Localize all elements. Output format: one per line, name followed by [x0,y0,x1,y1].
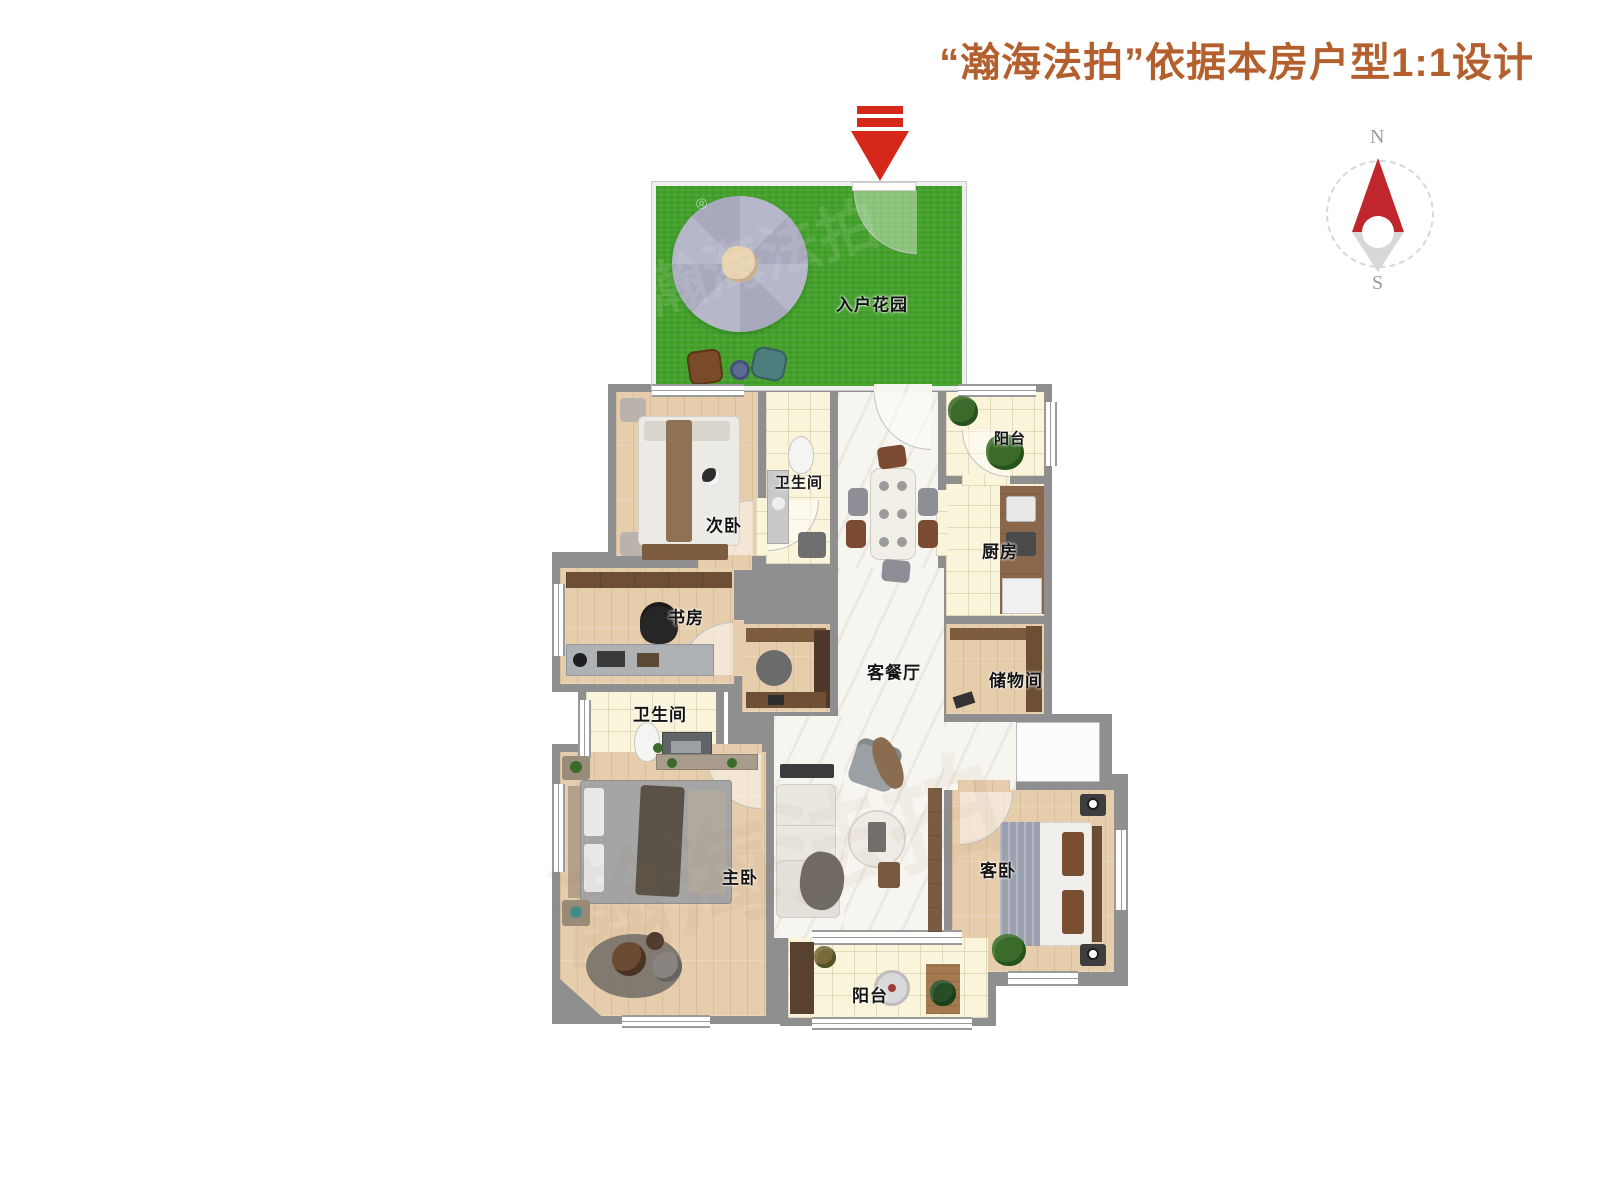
umbrella-center [722,246,758,282]
plant [814,946,836,968]
window-balcony-bottom [812,1017,972,1030]
balcony-cabinet [790,942,814,1014]
bed-guest [1000,822,1092,946]
window-guest-right [1114,830,1128,910]
garden-gate [852,182,916,191]
label-kitchen: 厨房 [982,538,1018,563]
window-balcony-top [958,384,1036,397]
dresser-bedroom-2 [642,544,728,560]
side-table [878,862,900,888]
label-master-bedroom: 主卧 [722,864,758,889]
window-study-left [552,584,565,656]
nightstand [1080,794,1106,816]
label-guest-bedroom: 客卧 [980,857,1016,882]
closet-box [1016,722,1100,782]
dining-chair [918,520,938,548]
garden-chair-brown [686,348,724,386]
dining-chair [848,488,868,516]
fridge [1002,578,1042,614]
dining-chair [881,559,911,583]
page-title: “瀚海法拍”依据本房户型1:1设计 [939,30,1534,88]
label-balcony-top: 阳台 [994,428,1026,449]
wardrobe-study [566,572,732,588]
floor-vase [646,932,664,950]
toilet [788,436,814,474]
study-door-gap [732,620,744,676]
floor-vase [652,952,682,982]
coffee-table [848,810,906,868]
window-balcony-bottom-door [812,930,962,945]
dining-chair [846,520,866,548]
label-storage: 储物间 [989,667,1043,692]
study-desk [566,644,714,676]
storage-cabinet-top [950,628,1030,640]
label-bathroom-1: 卫生间 [775,472,823,493]
label-bathroom-2: 卫生间 [633,701,687,726]
label-entry-garden: 入户花园 [836,291,908,316]
label-living-dining: 客餐厅 [867,659,921,684]
plant [930,980,956,1006]
window-bathroom2-left [578,700,591,758]
nightstand [562,900,590,926]
kitchen-sink [1006,496,1036,522]
label-balcony-bottom: 阳台 [852,982,888,1007]
plant [948,396,978,426]
window-guest-bottom [1008,971,1078,986]
nightstand [562,756,590,780]
alcove-desk [746,692,826,708]
plant [992,934,1026,966]
garden-stool-blue [730,360,750,380]
window-master-left [552,784,565,872]
master-headboard [568,786,580,898]
window-bedroom2-top [652,384,744,397]
dining-table [870,468,916,560]
compass-south-label: S [1372,272,1383,295]
window-balcony-right [1044,402,1057,466]
floor-vase [612,942,646,976]
compass-north-label: N [1370,126,1384,149]
dining-chair [877,444,908,470]
window-master-bottom [622,1015,710,1028]
floorplan-canvas: “瀚海法拍”依据本房户型1:1设计 N S [0,0,1600,1200]
bed-master [580,780,732,904]
bathroom-stool [798,532,826,558]
dining-chair [918,488,938,516]
master-dresser [656,754,758,770]
nightstand [1080,944,1106,966]
label-study: 书房 [668,604,704,629]
round-rug [756,650,792,686]
label-bedroom-2: 次卧 [706,512,742,537]
tv-console [928,788,942,932]
tv-panel [780,764,834,778]
watermark-registered-icon: ® [696,196,707,213]
